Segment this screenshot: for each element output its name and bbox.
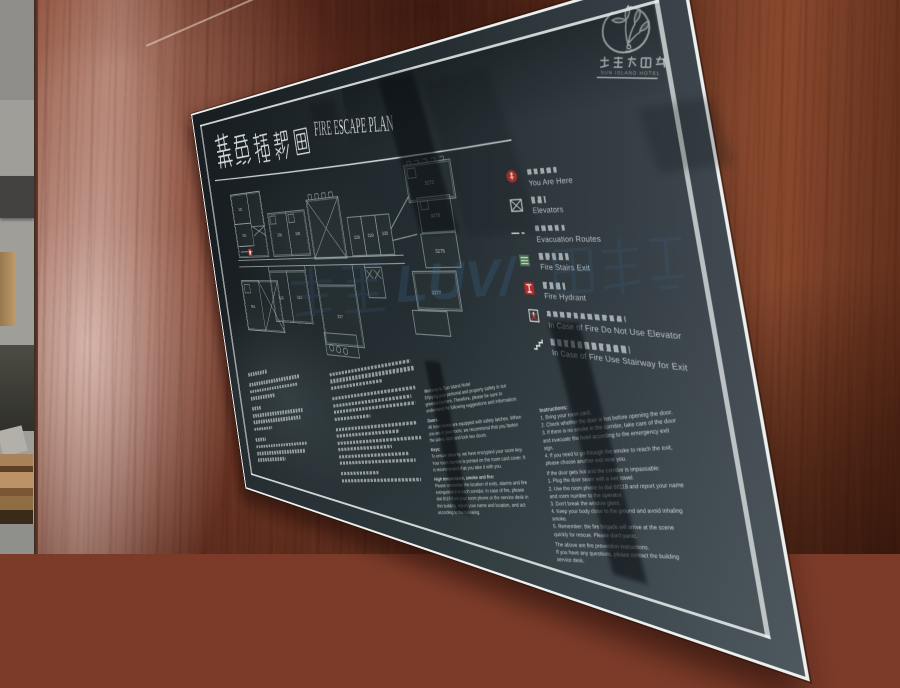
svg-text:329: 329 xyxy=(367,232,374,239)
svg-text:332: 332 xyxy=(242,233,247,239)
svg-text:328: 328 xyxy=(353,234,360,241)
svg-text:LUV/: LUV/ xyxy=(394,248,522,315)
svg-text:336: 336 xyxy=(295,230,301,236)
svg-text:330: 330 xyxy=(381,230,389,237)
svg-text:331: 331 xyxy=(238,206,243,212)
svg-text:335: 335 xyxy=(277,232,283,238)
